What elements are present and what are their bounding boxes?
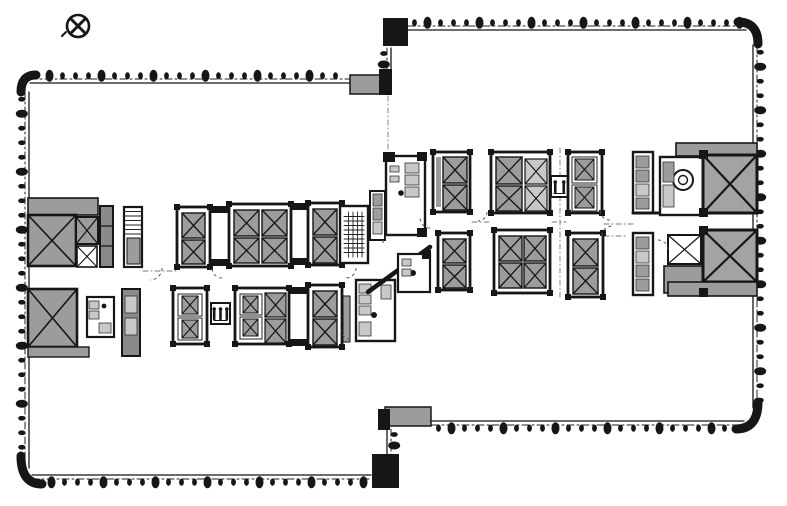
column-bump [254, 70, 262, 82]
column-bump [757, 79, 764, 84]
column-bump [242, 72, 247, 79]
core-post [417, 228, 427, 237]
column-bump [270, 479, 275, 486]
column-bump [60, 72, 65, 79]
column-bump [604, 422, 612, 434]
column-bump [86, 72, 91, 79]
column-bump [335, 479, 340, 486]
column-bump [177, 72, 182, 79]
elevator-bank-upper-2-post [226, 201, 232, 207]
column-bump [16, 168, 28, 176]
column-bump [646, 19, 651, 26]
column-bump [140, 479, 145, 486]
column-bump [757, 340, 764, 345]
column-bump [488, 425, 493, 432]
column-bump [659, 19, 664, 26]
corner-top-right [738, 22, 758, 44]
elevator-bank-upper-2-post [226, 263, 232, 269]
west-pantry-fixture [89, 311, 99, 319]
elevator-bank-east-upper-2-post [547, 149, 553, 155]
column-bump [333, 72, 338, 79]
column-bump [757, 50, 764, 55]
column-bump [754, 106, 766, 114]
column-bump [528, 17, 536, 29]
elevator-bank-lower-3-post [305, 344, 311, 350]
column-bump [476, 17, 484, 29]
core-shaft-cell [373, 194, 382, 206]
column-bump [757, 224, 764, 229]
column-bump [138, 72, 143, 79]
core-shaft-cell [373, 222, 382, 234]
column-bump [88, 479, 93, 486]
elevator-bank-lower-1-post [170, 285, 176, 291]
column-bump [283, 479, 288, 486]
step-post-bottom [378, 409, 390, 430]
fan-symbol-inner [679, 176, 688, 185]
column-bump [684, 17, 692, 29]
column-bump [18, 256, 25, 261]
column-bump [618, 425, 623, 432]
elevator-bank-east-upper-2-post [488, 210, 494, 216]
column-bump [464, 19, 469, 26]
west-pantry-fixture-dot [102, 304, 107, 309]
elevator-bank-east-lower-3-post [565, 294, 571, 300]
column-bump [296, 479, 301, 486]
column-bump [754, 63, 766, 71]
column-bump [380, 51, 387, 56]
elevator-bank-east-lower-2-post [547, 290, 553, 296]
restroom-stall [405, 175, 419, 185]
column-bump [18, 314, 25, 319]
elevator-bank-upper-3-post [305, 262, 311, 268]
elevator-bank-lower-1-post [204, 341, 210, 347]
column-bump [424, 17, 432, 29]
corner-bottom-left [21, 456, 42, 484]
elevator-bank-east-lower-1-post [467, 287, 473, 293]
elevator-bank-east-upper-1-post [467, 149, 473, 155]
west-core-band [28, 198, 98, 215]
column-bump [555, 19, 560, 26]
column-bump [696, 425, 701, 432]
west-service-cell [125, 318, 137, 335]
column-bump [754, 367, 766, 375]
column-bump [757, 93, 764, 98]
column-bump [18, 97, 25, 102]
column-bump [698, 19, 703, 26]
elevator-bank-east-upper-1-post [430, 149, 436, 155]
core-shaft-cell [373, 208, 382, 220]
column-bump [754, 324, 766, 332]
restroom-fixture-dot [398, 190, 404, 196]
elevator-bank-east-lower-3-post [600, 230, 606, 236]
column-bump [152, 476, 160, 488]
column-bump [112, 72, 117, 79]
bank-link-wall [289, 287, 308, 294]
column-bump [18, 372, 25, 377]
west-service-cell [125, 296, 137, 313]
column-bump [451, 19, 456, 26]
bank-link-wall [210, 206, 229, 213]
elevator-bank-east-lower-2-post [491, 227, 497, 233]
column-bump [391, 432, 398, 437]
restroom-fixture-dot [371, 312, 377, 318]
column-bump [656, 422, 664, 434]
column-bump [18, 213, 25, 218]
column-bump [594, 19, 599, 26]
column-bump [503, 19, 508, 26]
column-bump [216, 72, 221, 79]
column-bump [268, 72, 273, 79]
elevator-bank-lower-2-post [232, 341, 238, 347]
column-bump [711, 19, 716, 26]
column-bump [540, 425, 545, 432]
elevator-bank-lower-3-post [339, 344, 345, 350]
column-bump [632, 17, 640, 29]
column-bump [125, 72, 130, 79]
restroom-counter [381, 285, 391, 299]
fan-room-cell [663, 162, 674, 182]
elevator-bank-east-lower-1-post [467, 230, 473, 236]
column-bump [229, 72, 234, 79]
column-bump [127, 479, 132, 486]
column-bump [542, 19, 547, 26]
column-bump [631, 425, 636, 432]
east-core-band-bottom [668, 282, 757, 296]
floor-plan-drawing [0, 0, 787, 506]
column-bump [18, 184, 25, 189]
step-shade-box-bottom [385, 407, 431, 426]
column-bump [514, 425, 519, 432]
elevator-bank-east-upper-1-post [467, 209, 473, 215]
elevator-bank-east-upper-2-post [547, 210, 553, 216]
column-bump [757, 122, 764, 127]
column-bump [322, 479, 327, 486]
column-bump [281, 72, 286, 79]
column-bump [100, 476, 108, 488]
elevator-bank-east-upper-3-post [565, 149, 571, 155]
core-post [699, 208, 708, 217]
fan-room-cell [663, 185, 674, 207]
column-bump [164, 72, 169, 79]
column-bump [757, 354, 764, 359]
column-bump [378, 61, 390, 69]
column-bump [18, 430, 25, 435]
core-post [422, 250, 431, 259]
column-bump [73, 72, 78, 79]
step-post-top [379, 69, 392, 95]
core-post [699, 150, 708, 159]
west-service-strip [100, 206, 113, 267]
column-bump [190, 72, 195, 79]
elevator-bank-east-upper-2-post [488, 149, 494, 155]
elevator-bank-east-lower-3-post [600, 294, 606, 300]
column-bump [320, 72, 325, 79]
column-bump [500, 422, 508, 434]
core-post [699, 226, 708, 235]
column-bump [724, 19, 729, 26]
column-bump [75, 479, 80, 486]
column-bump [166, 479, 171, 486]
door-swing [346, 268, 356, 278]
east-service-cell [636, 170, 649, 182]
column-bump [18, 140, 25, 145]
core-post [699, 288, 708, 297]
elevator-bank-upper-1-post [174, 204, 180, 210]
east-service-cell [636, 279, 649, 291]
column-bump [580, 17, 588, 29]
column-bump [62, 479, 67, 486]
column-bump [18, 387, 25, 392]
restroom-stall [359, 295, 371, 304]
elevator-bank-lower-3-post [305, 282, 311, 288]
column-bump [527, 425, 532, 432]
core-post [417, 152, 427, 161]
column-bump [757, 383, 764, 388]
column-bump [16, 342, 28, 350]
restroom-sink [390, 176, 399, 182]
column-bump [16, 400, 28, 408]
column-bump [436, 425, 441, 432]
column-bump [18, 126, 25, 131]
column-bump [757, 137, 764, 142]
column-bump [18, 242, 25, 247]
column-bump [18, 416, 25, 421]
column-bump [256, 476, 264, 488]
column-bump [46, 70, 54, 82]
elevator-bank-lower-3-post [339, 282, 345, 288]
column-bump [18, 300, 25, 305]
column-bump [516, 19, 521, 26]
elevator-bank-lower-2-post [232, 285, 238, 291]
column-bump [670, 425, 675, 432]
column-bump [708, 422, 716, 434]
column-bump [16, 284, 28, 292]
column-bump [114, 479, 119, 486]
east-service-cell [636, 184, 649, 196]
east-service-cell [636, 251, 649, 263]
elevator-bank-east-lower-1-post [435, 287, 441, 293]
door-swing [658, 240, 668, 250]
west-core-band-lower [28, 347, 89, 357]
column-bump [568, 19, 573, 26]
column-bump [308, 476, 316, 488]
corner-bottom-right [736, 402, 758, 429]
elevator-bank-lower-1-post [170, 341, 176, 347]
column-bump [757, 311, 764, 316]
column-bump [757, 296, 764, 301]
bank-side-strip [436, 157, 441, 207]
core-post [383, 152, 395, 162]
elevator-bank-east-upper-3-post [599, 149, 605, 155]
restroom-stall [402, 269, 411, 276]
column-bump [448, 422, 456, 434]
column-bump [202, 70, 210, 82]
corner-block-step-bottom [372, 454, 399, 488]
elevator-bank-east-lower-1-post [435, 230, 441, 236]
column-bump [490, 19, 495, 26]
restroom-sink [390, 166, 399, 172]
column-bump [150, 70, 158, 82]
column-bump [348, 479, 353, 486]
column-bump [306, 70, 314, 82]
floor-plan-page [0, 0, 787, 506]
column-bump [18, 445, 25, 450]
column-bump [244, 479, 249, 486]
column-bump [566, 425, 571, 432]
column-bump [98, 70, 106, 82]
column-bump [16, 226, 28, 234]
elevator-bank-upper-1-post [174, 264, 180, 270]
column-bump [179, 479, 184, 486]
column-bump [192, 479, 197, 486]
column-bump [683, 425, 688, 432]
north-symbol-tick [62, 32, 66, 36]
column-bump [204, 476, 212, 488]
column-bump [18, 155, 25, 160]
east-service-cell [636, 198, 649, 209]
core-strip [343, 296, 350, 342]
column-bump [438, 19, 443, 26]
restroom-stall [359, 322, 371, 336]
west-stair-landing [127, 238, 140, 264]
column-bump [592, 425, 597, 432]
elevator-bank-lower-1-post [204, 285, 210, 291]
column-bump [412, 19, 417, 26]
column-bump [218, 479, 223, 486]
column-bump [607, 19, 612, 26]
column-bump [16, 110, 28, 118]
restroom-stall [402, 259, 411, 266]
elevator-bank-east-lower-3-post [565, 230, 571, 236]
elevator-bank-east-lower-2-post [491, 290, 497, 296]
column-bump [18, 329, 25, 334]
column-bump [18, 198, 25, 203]
column-bump [644, 425, 649, 432]
east-service-cell [636, 265, 649, 277]
column-bump [294, 72, 299, 79]
east-service-cell [636, 237, 649, 249]
corner-block-right-wing [383, 18, 408, 46]
column-bump [48, 476, 56, 488]
column-bump [18, 271, 25, 276]
column-bump [18, 358, 25, 363]
west-pantry-fixture [99, 323, 111, 333]
column-bump [388, 442, 400, 450]
column-bump [475, 425, 480, 432]
column-bump [360, 476, 368, 488]
elevator-bank-east-upper-3-post [565, 210, 571, 216]
column-bump [579, 425, 584, 432]
door-swing [212, 268, 222, 278]
column-bump [722, 425, 727, 432]
door-swing [478, 212, 487, 221]
restroom-stall [359, 306, 371, 315]
column-bump [620, 19, 625, 26]
elevator-bank-east-lower-2-post [547, 227, 553, 233]
door-swing [150, 268, 162, 280]
elevator-bank-upper-3-post [305, 200, 311, 206]
elevator-bank-east-upper-1-post [430, 209, 436, 215]
column-bump [462, 425, 467, 432]
column-bump [552, 422, 560, 434]
west-pantry-fixture [89, 301, 99, 309]
restroom-stall [405, 163, 419, 173]
column-bump [672, 19, 677, 26]
restroom-stall [405, 187, 419, 197]
east-service-cell [636, 156, 649, 168]
column-bump [231, 479, 236, 486]
